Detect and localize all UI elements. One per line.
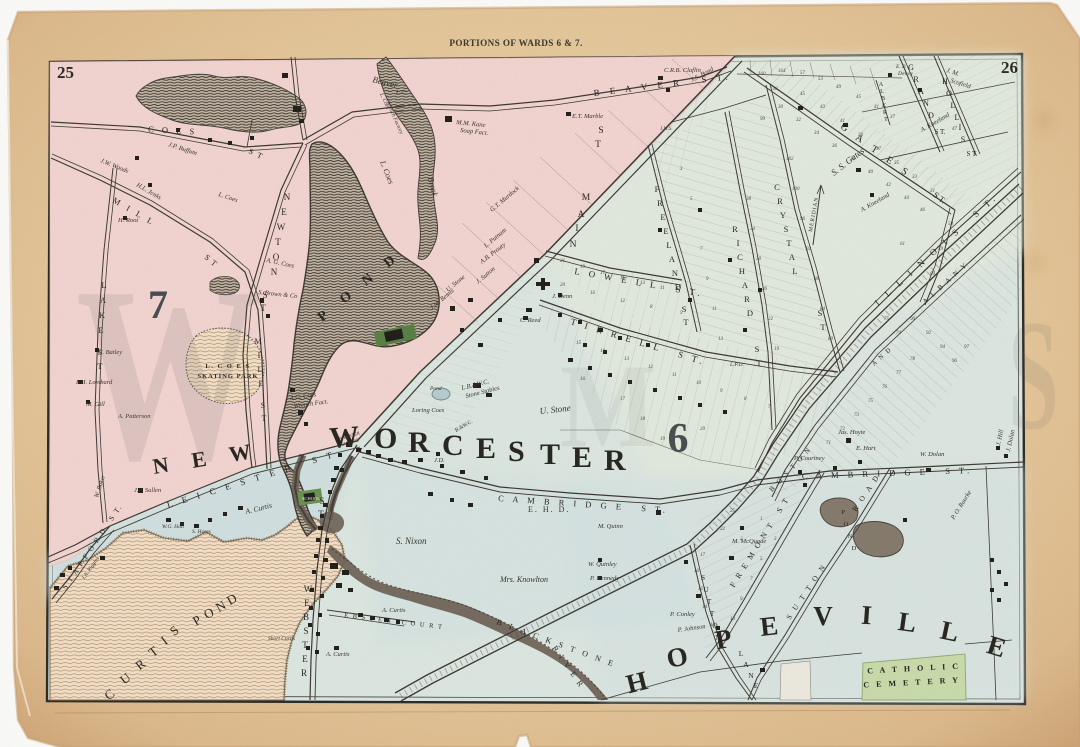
svg-text:S: S [1008,287,1059,462]
svg-text:M: M [560,340,656,473]
svg-text:W: W [76,235,261,512]
